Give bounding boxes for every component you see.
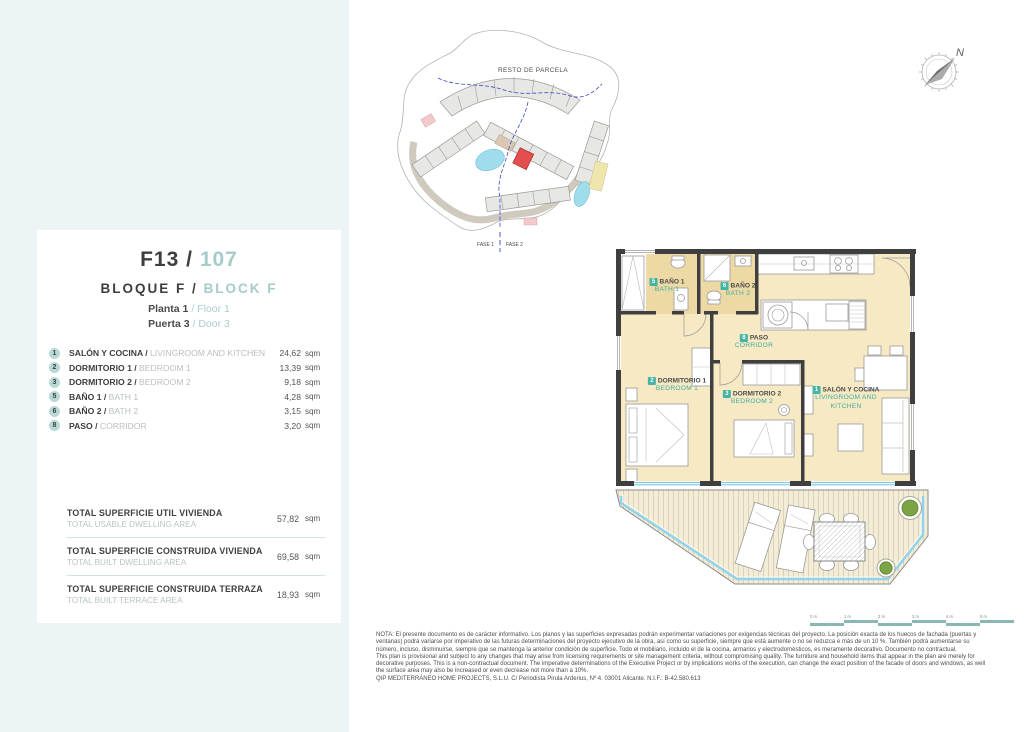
room-area-value: 13,39 — [267, 363, 301, 373]
block-separator: / — [192, 281, 198, 296]
room-name-separator: / — [132, 377, 139, 387]
unit-header: F13 / 107 BLOQUE F / BLOCK F Planta 1 / … — [37, 230, 341, 330]
kitchen-counter — [758, 254, 874, 274]
floor-separator: / — [191, 303, 194, 315]
total-unit: sqm — [299, 590, 325, 599]
scale-tick-label: 4 m — [946, 614, 953, 619]
room-row: 2 DORMITORIO 1 / BEDROOM 1 13,39 sqm — [49, 361, 325, 376]
label-bedroom1: 2DORMITORIO 1 BEDROOM 1 — [648, 377, 706, 392]
floor-en: Floor 1 — [197, 303, 230, 315]
room-number-badge: 1 — [813, 386, 821, 394]
room-name-separator: / — [101, 406, 108, 416]
plan-sheet: F13 / 107 BLOQUE F / BLOCK F Planta 1 / … — [0, 0, 1024, 732]
room-area-value: 3,15 — [267, 406, 301, 416]
label-living-kitchen: 1SALÓN Y COCINA LIVINGROOM AND KITCHEN — [813, 386, 880, 411]
total-label-en: TOTAL USABLE DWELLING AREA — [67, 520, 265, 529]
label-corridor: 8PASO CORRIDOR — [735, 334, 773, 349]
scale-tick-label: 5 m — [980, 614, 987, 619]
room-label-en: BEDROOM 2 — [723, 398, 781, 405]
unit-card: F13 / 107 BLOQUE F / BLOCK F Planta 1 / … — [37, 230, 341, 623]
terrace — [616, 490, 928, 584]
total-terrace-area: TOTAL SUPERFICIE CONSTRUIDA TERRAZA TOTA… — [67, 576, 325, 613]
room-name: PASO / CORRIDOR — [69, 421, 267, 431]
scale-tick-label: 0 m — [810, 614, 817, 619]
total-label-es: TOTAL SUPERFICIE UTIL VIVIENDA — [67, 508, 265, 518]
room-row: 5 BAÑO 1 / BATH 1 4,28 sqm — [49, 390, 325, 405]
room-name-separator: / — [101, 392, 108, 402]
room-label-en: BATH 1 — [650, 286, 685, 293]
total-label-en: TOTAL BUILT TERRACE AREA — [67, 596, 265, 605]
legal-note-es: NOTA: El presente documento es de caráct… — [376, 632, 992, 654]
plant-pot — [877, 559, 895, 577]
room-area-value: 4,28 — [267, 392, 301, 402]
plant-pot — [899, 497, 922, 520]
room-area-unit: sqm — [301, 392, 325, 401]
room-label-en: BEDROOM 1 — [648, 385, 706, 392]
compass-rose: N — [905, 38, 977, 102]
room-row: 1 SALÓN Y COCINA / LIVINGROOM AND KITCHE… — [49, 346, 325, 361]
totals-section: TOTAL SUPERFICIE UTIL VIVIENDA TOTAL USA… — [37, 500, 341, 613]
room-number-badge: 5 — [49, 391, 60, 402]
room-number-badge: 2 — [648, 377, 656, 385]
unit-number: 107 — [200, 248, 238, 271]
total-unit: sqm — [299, 552, 325, 561]
total-labels: TOTAL SUPERFICIE CONSTRUIDA TERRAZA TOTA… — [67, 584, 265, 605]
room-name-separator: / — [143, 348, 150, 358]
room-area-unit: sqm — [301, 407, 325, 416]
room-name-separator: / — [132, 363, 139, 373]
room-name: BAÑO 2 / BATH 2 — [69, 406, 267, 416]
total-unit: sqm — [299, 514, 325, 523]
room-label-es: PASO — [750, 335, 768, 342]
room-label-es: SALÓN Y COCINA — [823, 387, 880, 394]
legal-notes: NOTA: El presente documento es de caráct… — [376, 632, 992, 683]
unit-code: F13 — [140, 248, 179, 271]
room-area-unit: sqm — [301, 349, 325, 358]
room-name: SALÓN Y COCINA / LIVINGROOM AND KITCHEN — [69, 348, 267, 358]
resto-de-parcela-label: RESTO DE PARCELA — [498, 67, 568, 74]
compass-north-label: N — [956, 47, 964, 59]
total-labels: TOTAL SUPERFICIE UTIL VIVIENDA TOTAL USA… — [67, 508, 265, 529]
total-value: 69,58 — [265, 552, 299, 562]
room-name-separator: / — [93, 421, 100, 431]
room-label-en: BATH 2 — [721, 290, 756, 297]
room-area-unit: sqm — [301, 363, 325, 372]
room-area-value: 3,20 — [267, 421, 301, 431]
room-number-badge: 3 — [723, 390, 731, 398]
total-label-es: TOTAL SUPERFICIE CONSTRUIDA TERRAZA — [67, 584, 265, 594]
unit-title: F13 / 107 — [37, 248, 341, 272]
total-label-en: TOTAL BUILT DWELLING AREA — [67, 558, 265, 567]
total-label-es: TOTAL SUPERFICIE CONSTRUIDA VIVIENDA — [67, 546, 265, 556]
room-area-unit: sqm — [301, 421, 325, 430]
room-area-value: 9,18 — [267, 377, 301, 387]
room-label-es: DORMITORIO 1 — [658, 378, 706, 385]
total-usable-area: TOTAL SUPERFICIE UTIL VIVIENDA TOTAL USA… — [67, 500, 325, 537]
scale-tick-label: 2 m — [878, 614, 885, 619]
room-row: 3 DORMITORIO 2 / BEDROOM 2 9,18 sqm — [49, 375, 325, 390]
total-built-area: TOTAL SUPERFICIE CONSTRUIDA VIVIENDA TOT… — [67, 538, 325, 575]
block-title: BLOQUE F / BLOCK F — [37, 281, 341, 296]
total-labels: TOTAL SUPERFICIE CONSTRUIDA VIVIENDA TOT… — [67, 546, 265, 567]
room-number-badge: 2 — [49, 362, 60, 373]
room-label-es: DORMITORIO 2 — [733, 391, 781, 398]
room-name: BAÑO 1 / BATH 1 — [69, 392, 267, 402]
legal-note-en: This plan is provisional and subject to … — [376, 654, 992, 676]
room-area-value: 24,62 — [267, 348, 301, 358]
unit-title-separator: / — [186, 248, 193, 271]
total-value: 57,82 — [265, 514, 299, 524]
door-row: Puerta 3 / Door 3 — [37, 318, 341, 330]
room-number-badge: 3 — [49, 377, 60, 388]
pink-block — [524, 218, 537, 225]
label-bedroom2: 3DORMITORIO 2 BEDROOM 2 — [723, 390, 781, 405]
scale-tick-label: 1 m — [844, 614, 851, 619]
floor-es: Planta 1 — [148, 303, 188, 315]
room-name: DORMITORIO 1 / BEDROOM 1 — [69, 363, 267, 373]
floor-plan-drawing — [598, 238, 943, 606]
door-es: Puerta 3 — [148, 318, 189, 330]
room-number-badge: 5 — [650, 278, 658, 286]
room-row: 8 PASO / CORRIDOR 3,20 sqm — [49, 419, 325, 434]
fase-1-label: FASE 1 — [477, 242, 494, 248]
scale-tick-label: 3 m — [912, 614, 919, 619]
info-panel: F13 / 107 BLOQUE F / BLOCK F Planta 1 / … — [0, 0, 349, 732]
room-area-list: 1 SALÓN Y COCINA / LIVINGROOM AND KITCHE… — [37, 346, 341, 433]
room-number-badge: 1 — [49, 348, 60, 359]
room-label-es: BAÑO 2 — [731, 283, 756, 290]
block-en: BLOCK F — [204, 281, 278, 296]
door-separator: / — [193, 318, 196, 330]
room-number-badge: 6 — [721, 282, 729, 290]
room-label-es: BAÑO 1 — [660, 279, 685, 286]
total-value: 18,93 — [265, 590, 299, 600]
door-en: Door 3 — [198, 318, 230, 330]
room-number-badge: 8 — [740, 334, 748, 342]
fase-2-label: FASE 2 — [506, 242, 523, 248]
kitchen-island — [761, 300, 866, 330]
room-number-badge: 8 — [49, 420, 60, 431]
company-line: QIP MEDITERRÁNEO HOME PROJECTS, S.L.U. C… — [376, 676, 992, 683]
site-plan: RESTO DE PARCELA FASE 1 FASE 2 — [378, 22, 636, 258]
room-label-en: CORRIDOR — [735, 342, 773, 349]
label-bath2: 6BAÑO 2 BATH 2 — [721, 282, 756, 297]
floor-plan: 5BAÑO 1 BATH 1 6BAÑO 2 BATH 2 8PASO CORR… — [598, 238, 943, 606]
room-area-unit: sqm — [301, 378, 325, 387]
block-es: BLOQUE F — [100, 281, 186, 296]
scale-bar: 0 m 1 m 2 m 3 m 4 m 5 m — [808, 612, 1018, 630]
room-number-badge: 6 — [49, 406, 60, 417]
label-bath1: 5BAÑO 1 BATH 1 — [650, 278, 685, 293]
compass-needle-dark — [925, 58, 955, 85]
room-label-en: LIVINGROOM AND KITCHEN — [813, 394, 879, 411]
floor-row: Planta 1 / Floor 1 — [37, 303, 341, 315]
room-row: 6 BAÑO 2 / BATH 2 3,15 sqm — [49, 404, 325, 419]
room-name: DORMITORIO 2 / BEDROOM 2 — [69, 377, 267, 387]
